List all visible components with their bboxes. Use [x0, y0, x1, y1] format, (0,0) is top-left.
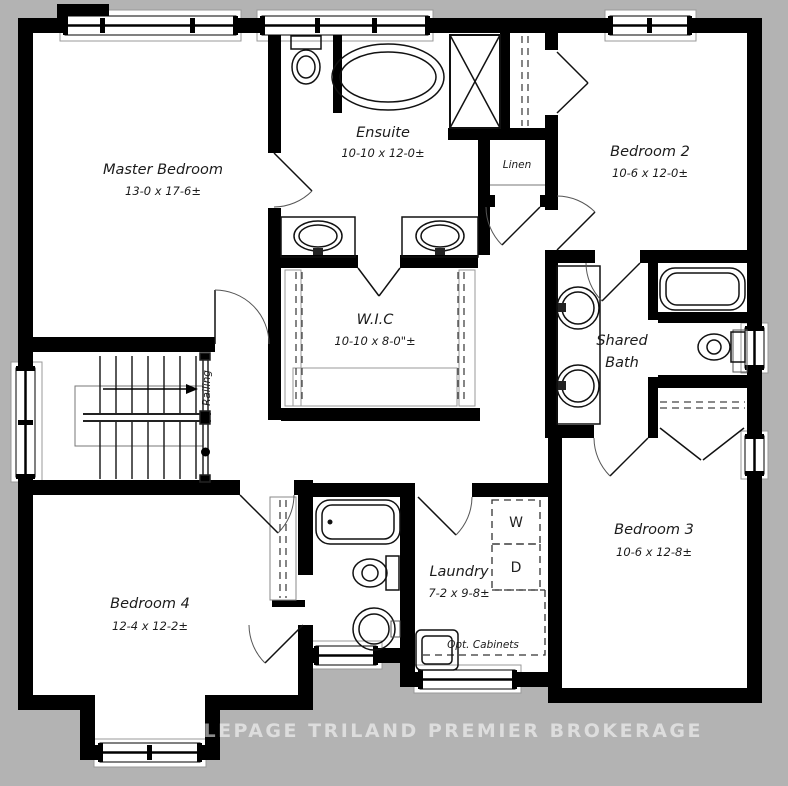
closet-stub-wall	[272, 600, 305, 607]
dryer-label: D	[511, 560, 522, 576]
window	[418, 670, 517, 689]
window	[260, 16, 430, 35]
faucet-icon	[328, 520, 333, 525]
master-bedroom-dims: 13-0 x 17-6±	[125, 184, 201, 198]
window	[745, 326, 764, 370]
bedroom4-label: Bedroom 4	[110, 596, 190, 612]
wic-dims: 10-10 x 8-0"±	[334, 334, 415, 348]
shower-icon	[450, 35, 500, 128]
bedroom3-dims: 10-6 x 12-8±	[616, 545, 692, 559]
laundry-dims: 7-2 x 9-8±	[428, 586, 489, 600]
window	[608, 16, 692, 35]
window	[745, 434, 764, 476]
bay-window	[98, 743, 202, 762]
shared-bath-label-line1: Shared	[596, 333, 647, 349]
ensuite-dims: 10-10 x 12-0±	[341, 146, 424, 160]
faucet-icon	[435, 248, 445, 255]
faucet-icon	[313, 248, 323, 255]
floor-plan-drawing	[0, 0, 788, 786]
brokerage-watermark: ROYAL LEPAGE TRILAND PREMIER BROKERAGE	[113, 720, 703, 742]
wic-label: W.I.C	[357, 312, 394, 328]
master-bedroom-label: Master Bedroom	[103, 162, 223, 178]
linen-label: Linen	[503, 159, 532, 171]
bedroom2-dims: 10-6 x 12-0±	[612, 166, 688, 180]
floor-plan-canvas: Master Bedroom 13-0 x 17-6± Ensuite 10-1…	[0, 0, 788, 786]
window	[16, 366, 35, 479]
shared-bath-label-line2: Bath	[605, 355, 639, 371]
ensuite-label: Ensuite	[356, 125, 410, 141]
bedroom3-label: Bedroom 3	[614, 522, 694, 538]
bedroom4-dims: 12-4 x 12-2±	[112, 619, 188, 633]
window	[63, 16, 238, 35]
opt-cabinets-label: Opt. Cabinets	[447, 639, 519, 651]
bedroom2-label: Bedroom 2	[610, 144, 690, 160]
railing-label: Railing	[201, 370, 213, 406]
faucet-icon	[558, 381, 566, 390]
washer-label: W	[509, 515, 523, 531]
laundry-label: Laundry	[429, 564, 488, 580]
faucet-icon	[558, 303, 566, 312]
